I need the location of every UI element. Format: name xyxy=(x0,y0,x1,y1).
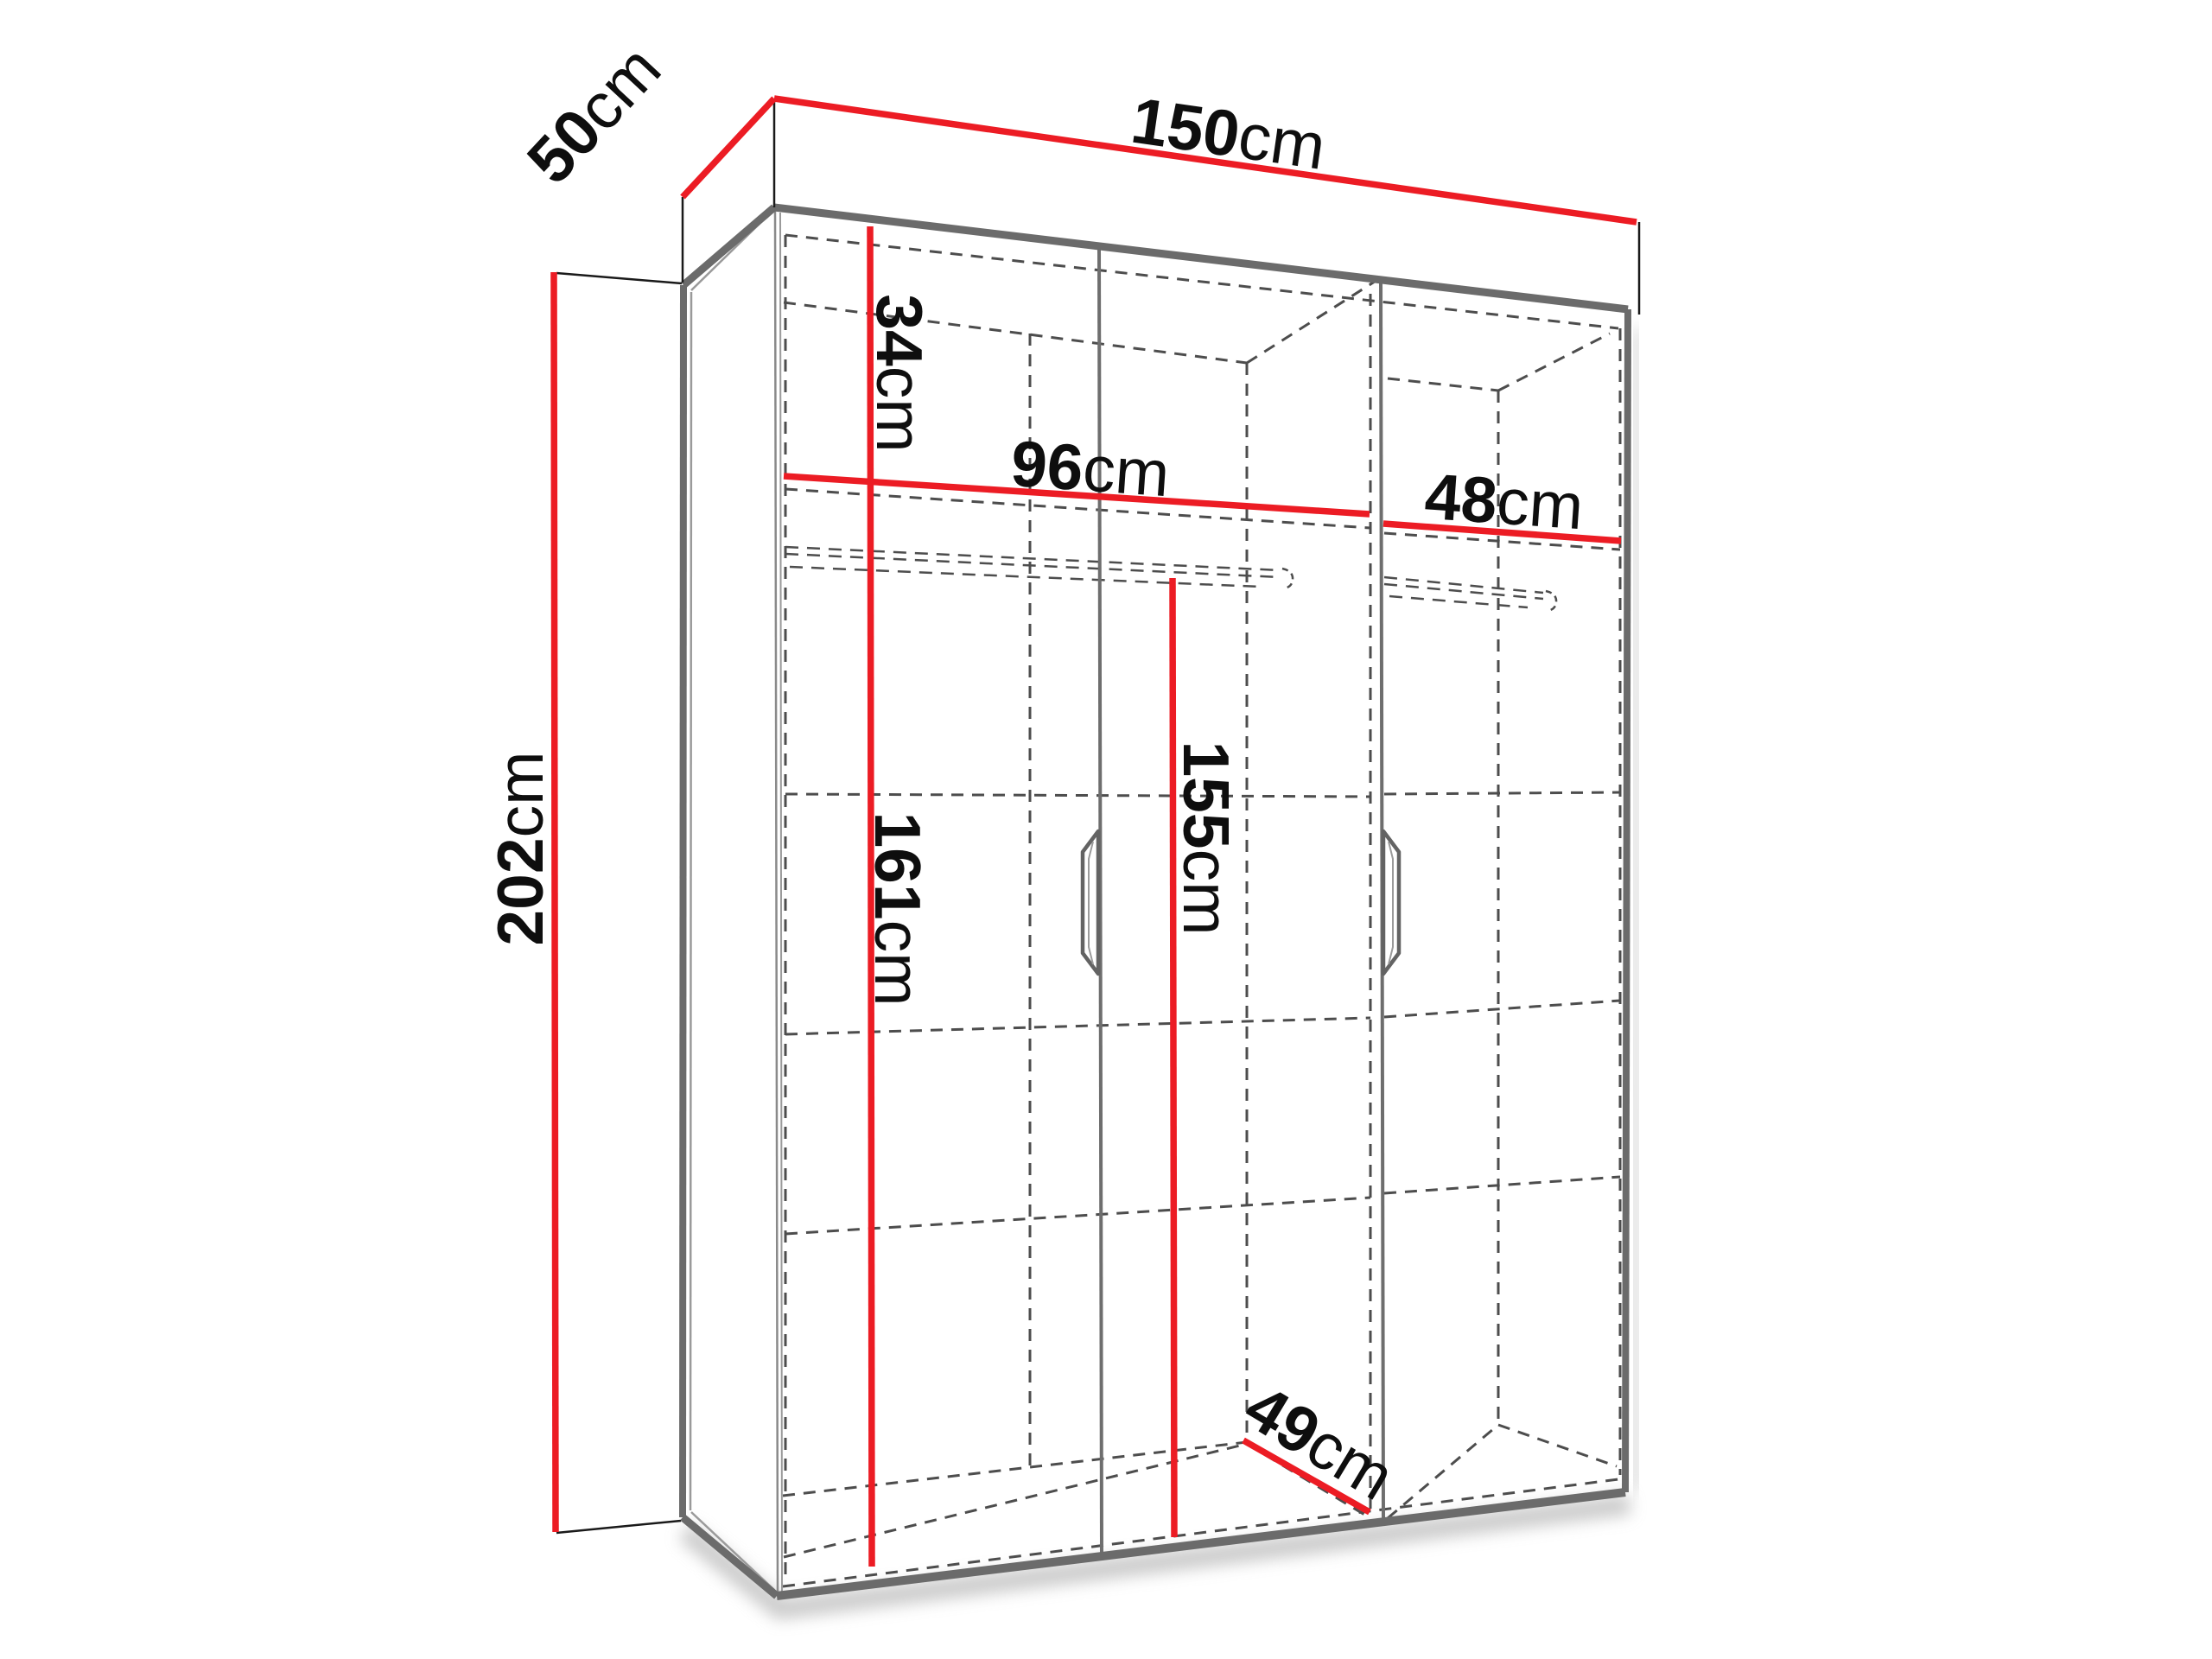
svg-text:34cm: 34cm xyxy=(863,294,936,452)
svg-text:50cm: 50cm xyxy=(513,32,675,197)
svg-text:202cm: 202cm xyxy=(484,751,556,945)
svg-text:96cm: 96cm xyxy=(1008,427,1172,511)
svg-text:161cm: 161cm xyxy=(861,811,934,1006)
svg-text:48cm: 48cm xyxy=(1422,460,1586,543)
svg-text:150cm: 150cm xyxy=(1127,84,1330,183)
svg-text:155cm: 155cm xyxy=(1170,741,1243,935)
svg-text:49cm: 49cm xyxy=(1233,1370,1406,1513)
